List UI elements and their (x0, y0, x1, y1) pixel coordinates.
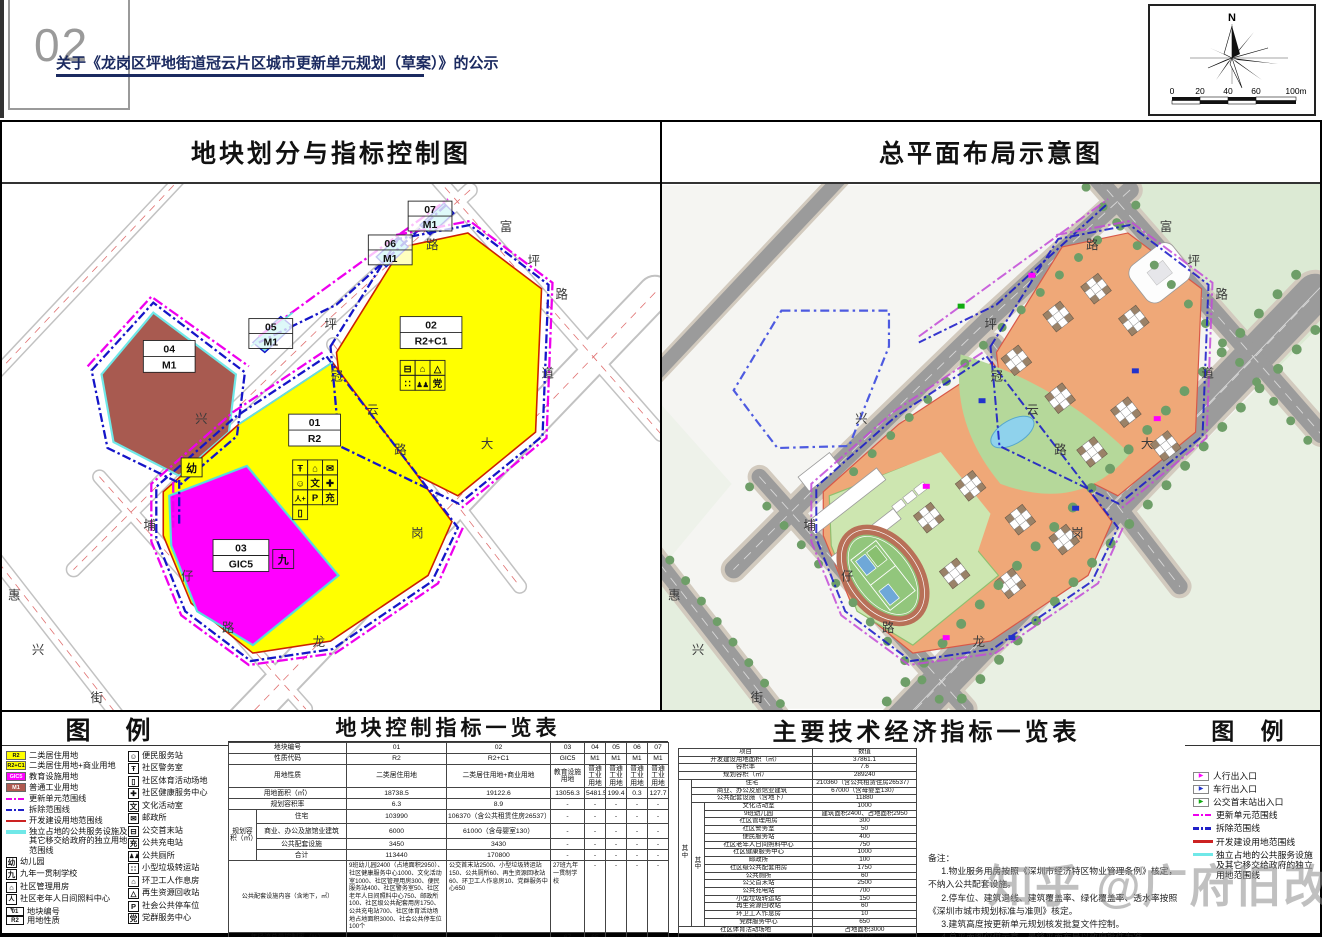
scale-tick: 20 (1195, 86, 1205, 96)
legend-item: 更新单元范围线 (6, 794, 128, 803)
cell: 公共充电站 (705, 887, 813, 895)
scale-tick: 100m (1285, 86, 1306, 96)
legend-left-title: 图 例 (2, 712, 228, 746)
cell: 9班幼儿园2400（占地面积2950）、社区健康服务中心1000、文化活动室10… (347, 861, 447, 932)
charging-icon: 充 (128, 838, 139, 849)
row-label: 商业、办公及旅馆业建筑 (257, 824, 347, 839)
cell: 10 (813, 911, 917, 919)
legend-item: ⌂社区管理用房 (6, 882, 128, 893)
cell: - (585, 850, 606, 861)
row-nature: 性质代码R2R2+C1GIC5M1M1M1M1 (229, 754, 669, 765)
row-runoff: 年径流总量控制率（%）66666765--- (229, 932, 669, 937)
cell: 6000 (347, 824, 447, 839)
recycle-icon: △ (128, 888, 139, 899)
legend-item: 01R2地块编号用地性质 (6, 907, 128, 926)
pedestrian-entry-icon: ▶ (1193, 772, 1209, 781)
cell: 199.4 (606, 788, 627, 799)
cell: 开发建设用地面积（㎡） (679, 756, 813, 764)
svg-text:坪: 坪 (528, 254, 540, 268)
development-line-icon (6, 820, 26, 823)
cell: - (627, 850, 648, 861)
cell: 社区老年人日间照料中心 (705, 841, 813, 849)
cell: 127.7 (648, 788, 669, 799)
legend-item: 党党群服务中心 (128, 913, 226, 924)
svg-text:九: 九 (277, 552, 289, 566)
demolition-line-icon (1193, 827, 1213, 830)
svg-text:龙: 龙 (313, 635, 325, 649)
svg-text:道: 道 (542, 366, 554, 380)
planning-notice-page: 02 关于《龙岗区坪地街道冠云片区城市更新单元规划（草案）》的公示 N 0 (0, 0, 1322, 937)
row-code: 地块编号01020304050607 (229, 743, 669, 754)
legend-item: P社会公共停车位 (128, 901, 226, 912)
cell: - (606, 824, 627, 839)
cell: 9班幼儿园 (705, 810, 813, 818)
svg-text:01: 01 (309, 418, 321, 429)
cell: 普通工业用地 (648, 765, 669, 788)
svg-text:R2+C1: R2+C1 (415, 336, 448, 347)
row-facility: 公共配套设施34503430----- (229, 839, 669, 850)
cell: - (551, 799, 585, 810)
row-label: 地块编号 (229, 743, 347, 754)
cell: 社区级公共配套用房 (705, 864, 813, 872)
zhong-cell: 其中 (692, 803, 705, 927)
bus-terminal-icon: ⊟ (404, 364, 412, 375)
legend-item: △再生资源回收站 (128, 888, 226, 899)
legend-item: M1普通工业用地 (6, 783, 128, 792)
svg-text:街: 街 (91, 691, 103, 705)
svg-text:埔: 埔 (143, 519, 155, 533)
legend-item: R2+C1二类居住用地+商业用地 (6, 761, 128, 770)
left-panel-title: 地块划分与指标控制图 (2, 122, 660, 184)
kindergarten-marker: 幼 (181, 458, 202, 477)
legend-item: 拆除范围线 (6, 805, 128, 814)
cell: 二类居住用地 (347, 765, 447, 788)
cell: 社区体育活动场地 (679, 926, 813, 934)
cell: 0.3 (627, 788, 648, 799)
cell: 6.3 (347, 799, 447, 810)
row-commercial: 商业、办公及旅馆业建筑600061000（含母婴室130）----- (229, 824, 669, 839)
plot-label-02: 02R2+C1 (400, 317, 462, 349)
post-icon: ✉ (326, 463, 334, 474)
legend-left: 图 例 R2二类居住用地 R2+C1二类居住用地+商业用地 GIC5教育设施用地… (2, 712, 228, 933)
cell: 公交首末站2500、小型垃圾转运站150、公共厕所60、再生资源回收站60、环卫… (447, 861, 551, 932)
cell: 13056.3 (551, 788, 585, 799)
master-layout-map: 富坪路 坪路 冠云路 兴 埔仔路 龙岗大道 惠兴街 (662, 184, 1320, 710)
cell: 项目 (679, 749, 813, 757)
scale-tick: 60 (1251, 86, 1261, 96)
culture-room-icon: 文 (128, 801, 139, 812)
svg-text:富: 富 (500, 219, 512, 234)
industry-swatch: M1 (6, 783, 26, 792)
cell: 党群服务中心 (705, 918, 813, 926)
tech-header: 项目数值 (679, 749, 917, 757)
tech-table-title: 主要技术经济指标一览表 (670, 712, 1183, 746)
svg-text:幼: 幼 (186, 461, 197, 475)
legend-item: ☺便民服务站 (128, 751, 226, 762)
cell: 公交首末站 (705, 880, 813, 888)
svg-text:M1: M1 (423, 220, 438, 231)
unit-boundary-line-icon (6, 798, 26, 801)
plot-label-07: 07M1 (408, 201, 452, 231)
svg-text:大: 大 (1141, 437, 1153, 451)
cell: - (648, 799, 669, 810)
cell: 61000（含母婴室130） (447, 824, 551, 839)
cell: 170800 (447, 850, 551, 861)
cell: 3430 (447, 839, 551, 850)
cell: 60 (813, 903, 917, 911)
waste-transfer-icon: ∷ (405, 379, 411, 390)
legend-item: 独立占地的公共服务设施及其它移交给政府的独立用地范围线 (6, 827, 128, 855)
cell: GIC5 (551, 754, 585, 765)
cell: 67000（含母婴室130） (813, 787, 917, 795)
legend-item: 人+社区老年人日间照料中心 (6, 894, 128, 905)
svg-text:龙: 龙 (973, 635, 985, 649)
capacity-label: 规划容积（㎡） (229, 810, 257, 861)
cell: - (627, 810, 648, 824)
cell: 05 (606, 743, 627, 754)
cell: - (606, 839, 627, 850)
waste-transfer-icon: ∷ (128, 863, 139, 874)
community-house-icon: ⌂ (312, 463, 318, 474)
culture-room-icon: 文 (309, 477, 320, 489)
sports-ground-icon: ▯ (128, 776, 139, 787)
post-icon: ✉ (128, 813, 139, 824)
cell: 公共配套设施（含地下） (692, 795, 813, 803)
right-panel-title: 总平面布局示意图 (662, 122, 1320, 184)
cell: - (648, 932, 669, 937)
cell: 建筑面积2400、占地面积2950 (813, 810, 917, 818)
cell: - (627, 824, 648, 839)
toilet-icon: ♟♟ (416, 381, 428, 389)
legend-item: 更新单元范围线 (1193, 810, 1318, 820)
svg-text:M1: M1 (383, 254, 398, 265)
cell: M1 (627, 754, 648, 765)
cell: - (551, 824, 585, 839)
cell: - (627, 799, 648, 810)
cell: - (627, 861, 648, 932)
bus-terminal-icon: ⊟ (128, 826, 139, 837)
legend-item: ▶人行出入口 (1193, 771, 1318, 781)
cell: - (648, 850, 669, 861)
header: 02 关于《龙岗区坪地街道冠云片区城市更新单元规划（草案）》的公示 N 0 (0, 0, 1322, 120)
cell: 27班九年一贯制学校 (551, 861, 585, 932)
legend-item: 九九年一贯制学校 (6, 869, 128, 880)
svg-text:冠: 冠 (331, 369, 343, 383)
legend-item: 拆除范围线 (1193, 823, 1318, 833)
cell: 150 (813, 895, 917, 903)
cell: - (606, 799, 627, 810)
cell: 650 (813, 918, 917, 926)
cell: - (606, 850, 627, 861)
cell: - (551, 839, 585, 850)
legend-item: ✚社区健康服务中心 (128, 788, 226, 799)
plot-number-icon: 01R2 (6, 907, 24, 925)
row-use: 用地性质二类居住用地二类居住用地+商业用地教育设施用地普通工业用地普通工业用地普… (229, 765, 669, 788)
svg-text:仔: 仔 (181, 569, 193, 583)
cell: - (585, 824, 606, 839)
svg-text:岗: 岗 (1071, 527, 1083, 541)
legend-item: ▶车行出入口 (1193, 784, 1318, 794)
scale-tick: 0 (1170, 86, 1175, 96)
svg-text:路: 路 (426, 237, 439, 252)
plot-label-03: 03GIC5 (213, 540, 269, 572)
svg-text:路: 路 (222, 620, 235, 635)
cell: 60 (813, 872, 917, 880)
cell: 教育设施用地 (551, 765, 585, 788)
watermark: 知乎 @广府旧改 (988, 850, 1322, 915)
bus-entry-marker (958, 304, 965, 309)
svg-text:04: 04 (163, 344, 175, 355)
svg-text:路: 路 (1054, 442, 1067, 457)
cell: - (606, 932, 627, 937)
cell: 100 (813, 857, 917, 865)
cell: - (585, 839, 606, 850)
cell: 750 (813, 841, 917, 849)
cell: - (585, 799, 606, 810)
edge-bar (0, 0, 4, 118)
legend-left-col2: ☺便民服务站 Ŧ社区警务室 ▯社区体育活动场地 ✚社区健康服务中心 文文化活动室… (128, 749, 226, 927)
cell: 1750 (813, 864, 917, 872)
cell: 18738.5 (347, 788, 447, 799)
legend-item: ✉邮政所 (128, 813, 226, 824)
svg-text:06: 06 (384, 239, 396, 250)
cell: 7.6 (813, 764, 917, 772)
cell: 11880 (813, 795, 917, 803)
row-label: 年径流总量控制率（%） (229, 932, 347, 937)
parking-icon: P (312, 493, 318, 504)
svg-text:坪: 坪 (985, 318, 997, 332)
cell: 289240 (813, 772, 917, 780)
svg-text:GIC5: GIC5 (229, 559, 254, 570)
independent-line-icon (6, 830, 26, 833)
document-title: 关于《龙岗区坪地街道冠云片区城市更新单元规划（草案）》的公示 (56, 52, 499, 73)
plot-table-title: 地块控制指标一览表 (228, 712, 668, 742)
plot-label-01: 01R2 (289, 414, 341, 446)
svg-text:路: 路 (882, 620, 895, 635)
bus-entry-icon: ▶ (1193, 798, 1209, 807)
svg-text:富: 富 (1160, 219, 1172, 234)
cell: 1000 (813, 849, 917, 857)
legend-item: ▶公交首末站出入口 (1193, 797, 1318, 807)
cell: 400 (813, 833, 917, 841)
cell: 普通工业用地 (606, 765, 627, 788)
cell: - (551, 810, 585, 824)
svg-text:路: 路 (394, 442, 407, 457)
cell: 106370（含公共租赁住房26537） (447, 810, 551, 824)
cell: R2 (347, 754, 447, 765)
svg-text:R2: R2 (308, 434, 322, 445)
legend-item: 充公共充电站 (128, 838, 226, 849)
cell: 普通工业用地 (585, 765, 606, 788)
row-residential: 规划容积（㎡）住宅103990106370（含公共租赁住房26537）----- (229, 810, 669, 824)
residential-commercial-swatch: R2+C1 (6, 761, 26, 770)
cell: 04 (585, 743, 606, 754)
legend-item: GIC5教育设施用地 (6, 772, 128, 781)
plot-02-facility-icons: ⊟ ⌂ △ ∷ ♟♟ 党 (400, 360, 445, 390)
demolition-line-icon (6, 809, 26, 812)
police-icon: Ŧ (128, 763, 139, 774)
service-station-icon: ☺ (295, 478, 305, 489)
cell: 数值 (813, 749, 917, 757)
svg-text:惠: 惠 (668, 588, 680, 602)
svg-text:冠: 冠 (991, 369, 1003, 383)
scale-tick: 40 (1223, 86, 1233, 96)
row-far: 规划容积率6.38.9----- (229, 799, 669, 810)
cell: 二类居住用地+商业用地 (447, 765, 551, 788)
legend-item: ▯社区体育活动场地 (128, 776, 226, 787)
school-marker: 九 (273, 550, 294, 569)
row-label: 住宅 (257, 810, 347, 824)
plot-label-04: 04M1 (143, 340, 195, 372)
svg-text:岗: 岗 (411, 527, 423, 541)
north-label: N (1228, 12, 1236, 24)
cell: - (585, 861, 606, 932)
svg-text:云: 云 (366, 403, 378, 417)
cell: 66 (347, 932, 447, 937)
worker-rest-icon: ⌂ (128, 876, 139, 887)
party-center-icon: 党 (128, 913, 139, 924)
cell: M1 (606, 754, 627, 765)
title-underline (56, 74, 424, 77)
legend-item: ♟♟公共厕所 (128, 851, 226, 862)
legend-item: Ŧ社区警务室 (128, 763, 226, 774)
legend-left-col1: R2二类居住用地 R2+C1二类居住用地+商业用地 GIC5教育设施用地 M1普… (6, 749, 128, 927)
cell: 社区健康服务中心 (705, 849, 813, 857)
legend-item: ⌂环卫工人作息房 (128, 876, 226, 887)
svg-text:兴: 兴 (692, 643, 704, 657)
row-label: 合计 (257, 850, 347, 861)
svg-text:05: 05 (265, 323, 277, 334)
plot-indicator-table: 地块编号01020304050607 性质代码R2R2+C1GIC5M1M1M1… (228, 742, 669, 937)
cell: 普通工业用地 (627, 765, 648, 788)
cell: 5481.5 (585, 788, 606, 799)
cell: - (606, 810, 627, 824)
cell: 小型垃圾转运站 (705, 895, 813, 903)
cell: 06 (627, 743, 648, 754)
cell: 02 (447, 743, 551, 754)
north-arrow-icon: N 0 20 40 60 100m (1150, 6, 1314, 114)
row-label: 规划容积率 (229, 799, 347, 810)
legend-item: 开发建设用地范围线 (1193, 837, 1318, 847)
cell: - (627, 932, 648, 937)
svg-text:路: 路 (1086, 237, 1099, 252)
cell: 300 (813, 818, 917, 826)
cell: 103990 (347, 810, 447, 824)
legend-right-title: 图 例 (1185, 712, 1320, 746)
worker-rest-icon: ⌂ (420, 364, 426, 375)
cell: 邮政所 (705, 857, 813, 865)
cell: 占地面积3000 (813, 926, 917, 934)
cell: 3450 (347, 839, 447, 850)
note-line: 3.建筑高度按更新单元规划核发批复文件控制。 (928, 918, 1180, 931)
svg-text:仔: 仔 (841, 569, 853, 583)
scale-bar: 0 20 40 60 100m (1170, 86, 1307, 104)
cell: 文化活动室 (705, 803, 813, 811)
legend-item: 开发建设用地范围线 (6, 816, 128, 825)
svg-text:惠: 惠 (8, 588, 20, 602)
health-center-icon: ✚ (128, 788, 139, 799)
svg-text:兴: 兴 (195, 412, 207, 426)
legend-item: ⊟公交首末站 (128, 826, 226, 837)
cell: 37861.1 (813, 756, 917, 764)
vehicle-entry-icon: ▶ (1193, 785, 1209, 794)
development-line-icon (1193, 840, 1213, 843)
cell: R2+C1 (447, 754, 551, 765)
cell: 67 (551, 932, 585, 937)
service-station-icon: ☺ (128, 751, 139, 762)
svg-text:坪: 坪 (325, 318, 337, 332)
legend-item: R2二类居住用地 (6, 751, 128, 760)
unit-boundary-line-icon (1193, 814, 1213, 817)
svg-text:M1: M1 (264, 337, 279, 348)
elderly-care-icon: 人+ (6, 894, 17, 905)
legend-item: 幼幼儿园 (6, 857, 128, 868)
police-icon: Ŧ (297, 463, 303, 474)
legend-item: ∷小型垃圾转运站 (128, 863, 226, 874)
svg-text:M1: M1 (162, 360, 177, 371)
note-line: 4.总平面图仅供示意，最终平面布局以政府批件为准。 (928, 931, 1180, 937)
cell: - (585, 810, 606, 824)
cell: M1 (648, 754, 669, 765)
svg-text:07: 07 (424, 205, 436, 216)
charging-icon: 充 (325, 492, 335, 504)
education-swatch: GIC5 (6, 772, 26, 781)
cell: M1 (585, 754, 606, 765)
cell: 01 (347, 743, 447, 754)
legend-item: 文文化活动室 (128, 801, 226, 812)
cell: 商业、办公及旅馆业建筑 (692, 787, 813, 795)
svg-text:大: 大 (481, 437, 493, 451)
cell: 容积率 (679, 764, 813, 772)
cell: 07 (648, 743, 669, 754)
residential-swatch: R2 (6, 751, 26, 760)
cell: - (648, 810, 669, 824)
recycle-icon: △ (433, 364, 442, 375)
toilet-icon: ♟♟ (128, 851, 139, 862)
svg-text:兴: 兴 (855, 412, 867, 426)
cell: 03 (551, 743, 585, 754)
community-house-icon: ⌂ (6, 882, 17, 893)
cell: - (648, 861, 669, 932)
cell: 社区管理用房 (705, 818, 813, 826)
elderly-care-icon: 人+ (295, 494, 306, 503)
row-label: 公共配套设施内容（含地下，㎡） (229, 861, 347, 932)
svg-text:埔: 埔 (803, 519, 815, 533)
health-center-icon: ✚ (326, 478, 334, 489)
parking-icon: P (128, 901, 139, 912)
svg-text:03: 03 (235, 544, 247, 555)
svg-text:坪: 坪 (1188, 254, 1200, 268)
cell: - (606, 861, 627, 932)
cell: 环卫工人作息房 (705, 911, 813, 919)
svg-text:道: 道 (1202, 366, 1214, 380)
plot-label-05: 05M1 (249, 319, 293, 349)
row-label: 用地性质 (229, 765, 347, 788)
kindergarten-icon: 幼 (6, 857, 17, 868)
cell: 19122.6 (447, 788, 551, 799)
cell: 规划容积（㎡） (679, 772, 813, 780)
cell: 66 (447, 932, 551, 937)
row-content: 公共配套设施内容（含地下，㎡）9班幼儿园2400（占地面积2950）、社区健康服… (229, 861, 669, 932)
cell: - (627, 839, 648, 850)
sports-ground-icon: ▯ (298, 508, 303, 519)
row-label: 性质代码 (229, 754, 347, 765)
cell: 2500 (813, 880, 917, 888)
plot-indicator-section: 地块控制指标一览表 地块编号01020304050607 性质代码R2R2+C1… (228, 712, 668, 933)
cell: 1000 (813, 803, 917, 811)
cell: 113440 (347, 850, 447, 861)
cell: 700 (813, 887, 917, 895)
